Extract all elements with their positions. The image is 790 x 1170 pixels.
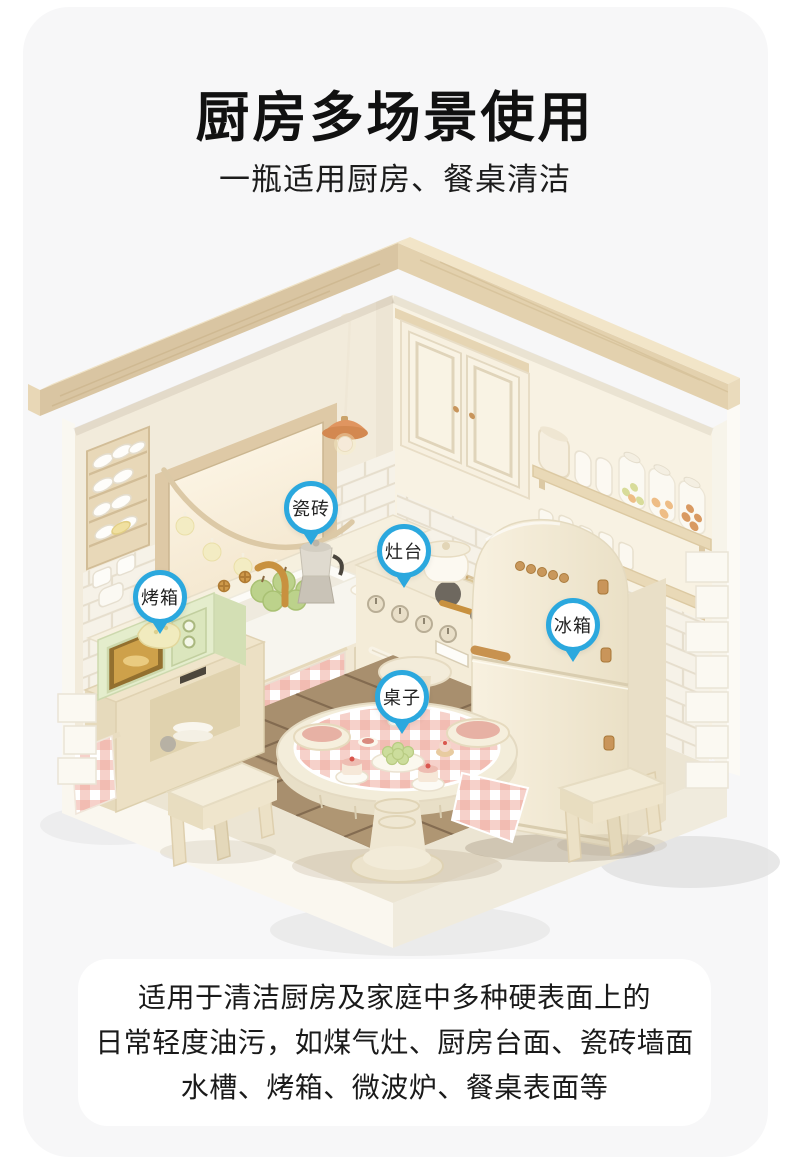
pin-tail-icon xyxy=(395,574,413,588)
description-line: 适用于清洁厨房及家庭中多种硬表面上的 xyxy=(138,975,651,1020)
callout-pin-tiles: 瓷砖 xyxy=(284,481,338,545)
pin-tail-icon xyxy=(564,648,582,662)
pin-tail-icon xyxy=(393,720,411,734)
callout-pin-oven: 烤箱 xyxy=(133,570,187,634)
callout-pin-stove: 灶台 xyxy=(377,524,431,588)
callout-label: 烤箱 xyxy=(141,584,179,610)
callout-label: 灶台 xyxy=(385,538,423,564)
description-line: 水槽、烤箱、微波炉、餐桌表面等 xyxy=(181,1065,609,1110)
pin-tail-icon xyxy=(302,531,320,545)
description-box: 适用于清洁厨房及家庭中多种硬表面上的 日常轻度油污，如煤气灶、厨房台面、瓷砖墙面… xyxy=(78,959,711,1126)
pin-tail-icon xyxy=(151,620,169,634)
description-line: 日常轻度油污，如煤气灶、厨房台面、瓷砖墙面 xyxy=(95,1020,694,1065)
callout-label: 冰箱 xyxy=(554,612,592,638)
callout-label: 瓷砖 xyxy=(292,495,330,521)
callout-pin-table: 桌子 xyxy=(375,670,429,734)
callout-label: 桌子 xyxy=(383,684,421,710)
callout-pin-fridge: 冰箱 xyxy=(546,598,600,662)
